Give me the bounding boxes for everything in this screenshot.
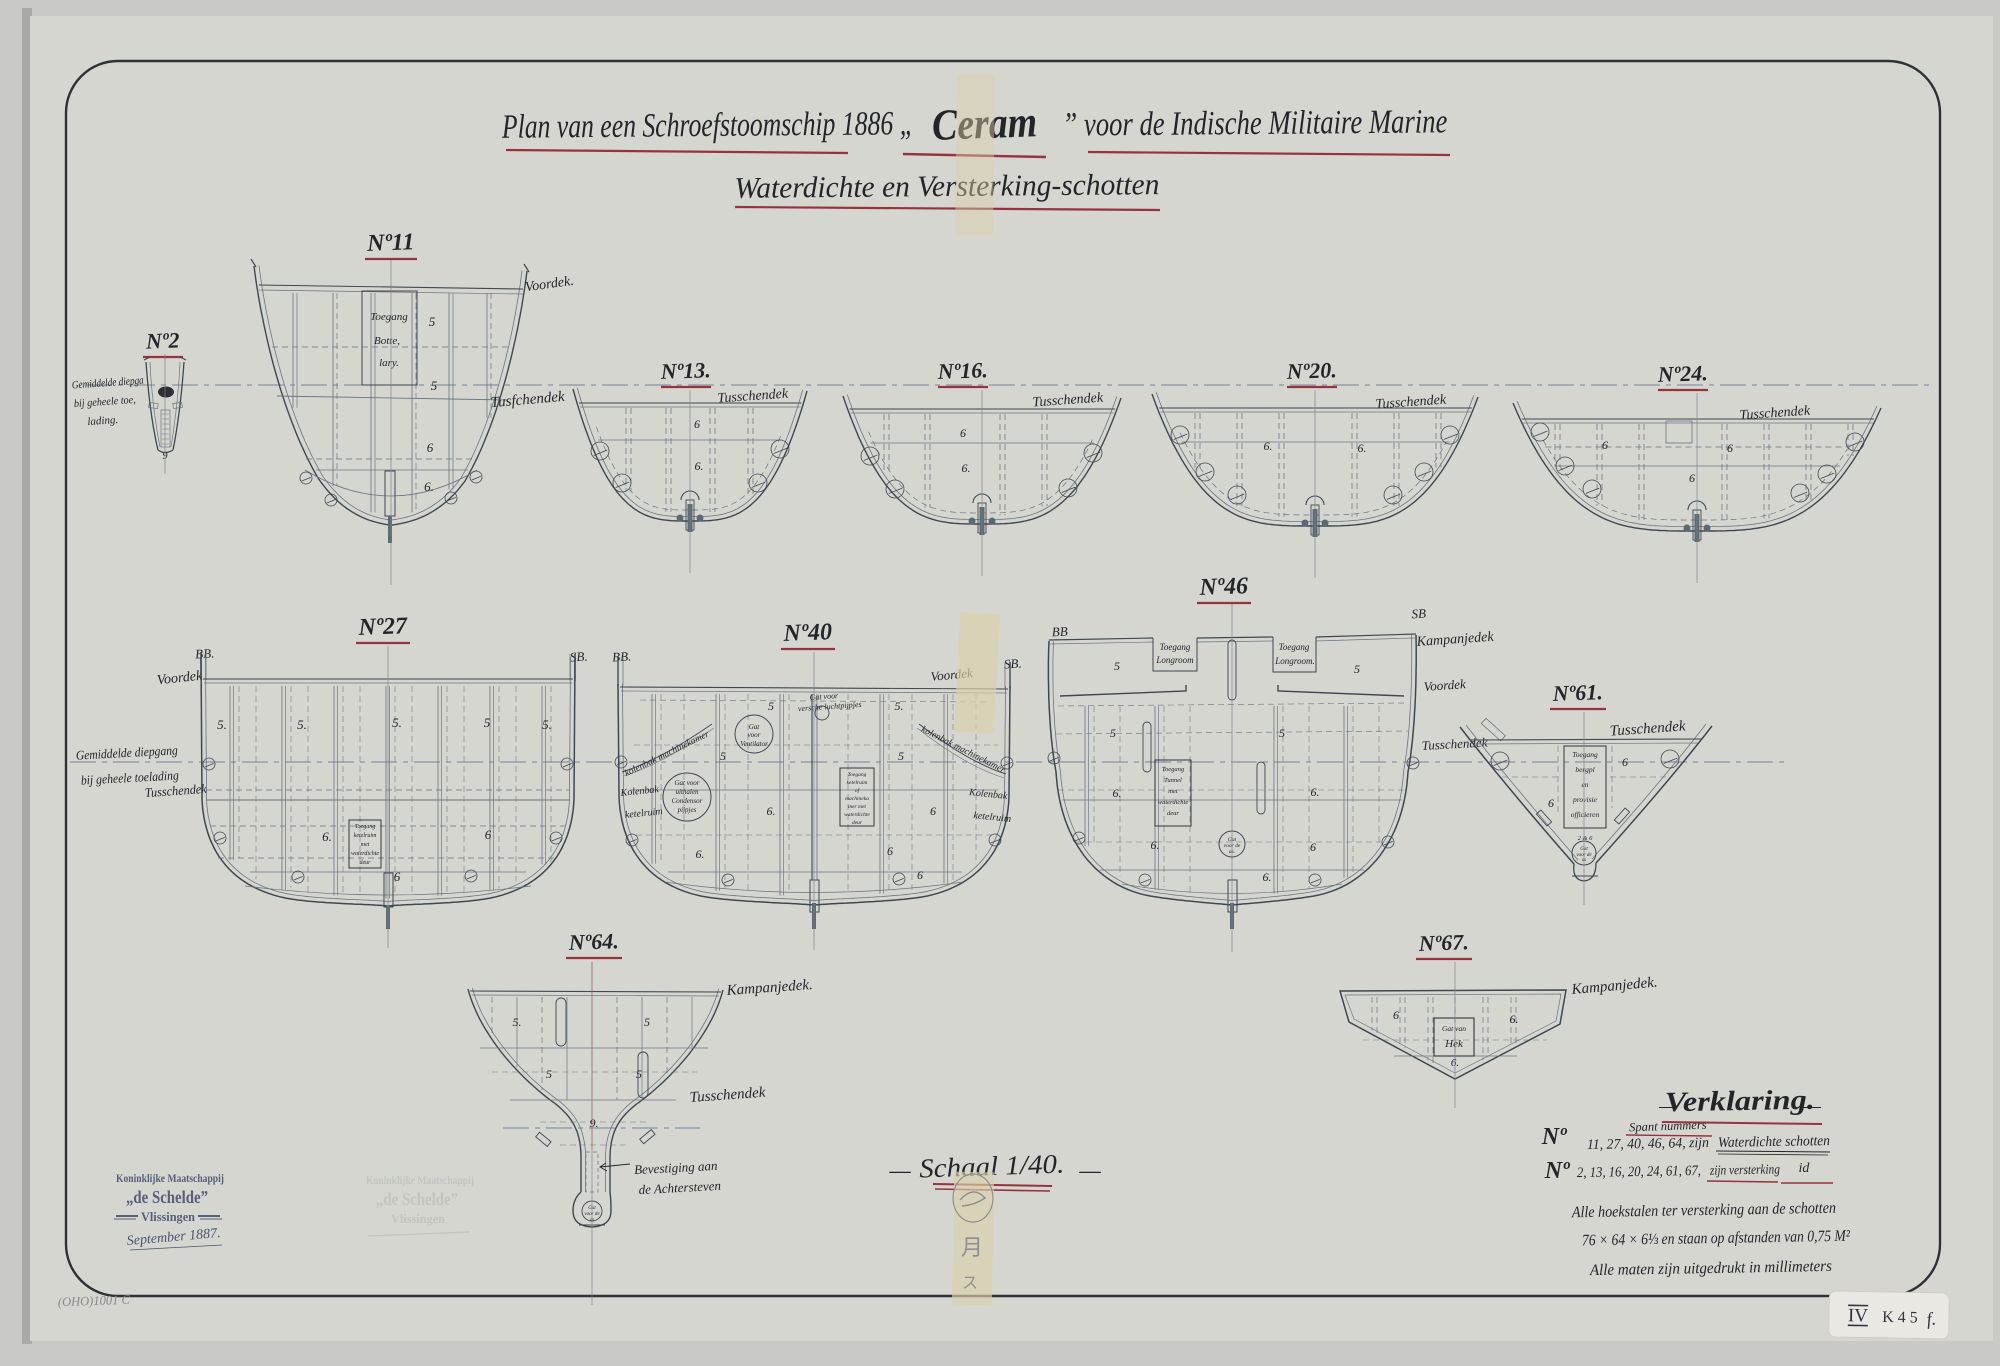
svg-text:mer met: mer met (848, 804, 866, 810)
svg-text:6: 6 (887, 844, 893, 858)
svg-text:SB.: SB. (570, 649, 588, 665)
svg-text:5.: 5. (542, 717, 552, 732)
svg-text:6: 6 (427, 440, 434, 455)
svg-text:Condensor: Condensor (672, 797, 703, 805)
svg-text:Nº40: Nº40 (782, 619, 832, 647)
svg-text:6.: 6. (1510, 1012, 1519, 1026)
svg-text:SB: SB (1411, 606, 1426, 622)
svg-text:waterdichte: waterdichte (844, 812, 870, 818)
svg-text:Toegang: Toegang (370, 311, 408, 323)
svg-text:6.: 6. (322, 829, 332, 844)
svg-text:Toegang: Toegang (848, 772, 867, 778)
svg-text:Nº2: Nº2 (145, 327, 180, 353)
svg-text:6: 6 (917, 868, 923, 882)
svg-text:9.: 9. (590, 1116, 599, 1130)
svg-text:5: 5 (898, 749, 904, 763)
svg-text:met: met (1168, 788, 1178, 795)
svg-text:Waterdichte schotten: Waterdichte schotten (1718, 1133, 1830, 1151)
svg-text:5.: 5. (217, 717, 227, 732)
svg-text:—: — (1078, 1158, 1101, 1184)
svg-text:K 4 5: K 4 5 (1882, 1309, 1918, 1327)
svg-text:Longroom: Longroom (1155, 655, 1194, 665)
svg-text:uithalen: uithalen (676, 788, 699, 796)
svg-text:5.: 5. (392, 715, 402, 730)
svg-text:6.: 6. (767, 804, 776, 818)
svg-text:SB.: SB. (1004, 656, 1022, 672)
svg-text:6: 6 (1622, 755, 1628, 769)
svg-text:5: 5 (429, 314, 436, 329)
svg-text:6: 6 (1310, 840, 1316, 854)
svg-text:Toegang: Toegang (1162, 766, 1185, 773)
svg-text:waterdichte: waterdichte (351, 851, 379, 857)
svg-text:6: 6 (1393, 1008, 1399, 1022)
svg-text:5: 5 (484, 715, 491, 730)
svg-text:6: 6 (394, 869, 401, 884)
svg-text:„de Schelde”: „de Schelde” (126, 1187, 208, 1207)
svg-text:Ventilator: Ventilator (740, 740, 768, 748)
svg-text:6: 6 (694, 417, 700, 431)
svg-text:Nº13.: Nº13. (659, 357, 711, 384)
svg-text:6.: 6. (424, 479, 434, 494)
svg-text:Nº64.: Nº64. (567, 928, 619, 955)
svg-text:Nº27: Nº27 (357, 613, 408, 641)
svg-text:Gat voor: Gat voor (674, 779, 699, 787)
svg-text:Koninklijke Maatschappij: Koninklijke Maatschappij (116, 1173, 224, 1185)
svg-text:Nº: Nº (1544, 1158, 1570, 1184)
svg-text:ス: ス (962, 1275, 978, 1292)
svg-text:6.: 6. (1151, 838, 1160, 852)
svg-text:Hek: Hek (1444, 1038, 1464, 1050)
svg-text:Nº20.: Nº20. (1285, 357, 1337, 384)
svg-text:5: 5 (644, 1015, 650, 1029)
svg-text:6.: 6. (1311, 785, 1320, 799)
svg-text:Toegang: Toegang (1572, 750, 1598, 759)
svg-text:Gat van: Gat van (1442, 1024, 1466, 1033)
svg-text:6.: 6. (1263, 870, 1272, 884)
svg-text:5.: 5. (297, 717, 307, 732)
svg-text:Toegang: Toegang (1160, 642, 1191, 652)
svg-text:Toegang: Toegang (355, 824, 375, 830)
svg-text:deur: deur (1167, 810, 1179, 817)
svg-text:5: 5 (1354, 662, 1360, 676)
svg-text:5: 5 (1110, 726, 1116, 740)
svg-text:officieren: officieren (1571, 810, 1600, 819)
svg-text:Koninklijke Maatschappij: Koninklijke Maatschappij (366, 1175, 474, 1187)
svg-text:5: 5 (636, 1067, 642, 1081)
svg-text:6: 6 (485, 827, 492, 842)
svg-text:IV: IV (1848, 1305, 1869, 1326)
svg-text:waterdichte: waterdichte (1158, 799, 1189, 806)
svg-text:(OHO)1001 С: (OHO)1001 С (58, 1292, 131, 1310)
svg-text:en: en (1581, 780, 1588, 789)
svg-text:lading.: lading. (87, 414, 119, 428)
svg-text:5.: 5. (513, 1015, 522, 1029)
svg-text:Verklaring.: Verklaring. (1665, 1085, 1816, 1119)
svg-text:Toegang: Toegang (1279, 642, 1310, 652)
svg-text:Nº: Nº (1541, 1124, 1567, 1150)
svg-text:Spant nummers: Spant nummers (1629, 1118, 1707, 1135)
svg-text:11, 27, 40, 46, 64, zijn: 11, 27, 40, 46, 64, zijn (1587, 1135, 1709, 1153)
svg-text:deur: deur (360, 860, 372, 866)
svg-text:” voor de Indische Militaire M: ” voor de Indische Militaire Marine (1062, 103, 1447, 143)
svg-text:6: 6 (930, 804, 936, 818)
svg-text:2, 13, 16, 20, 24, 61, 67,: 2, 13, 16, 20, 24, 61, 67, (1577, 1163, 1701, 1181)
svg-text:Gat: Gat (749, 723, 761, 731)
svg-text:voor: voor (748, 731, 761, 739)
svg-text:6: 6 (960, 426, 966, 440)
svg-text:ketelruim: ketelruim (354, 833, 377, 839)
svg-text:6.: 6. (1358, 441, 1367, 455)
svg-text:ketelruim: ketelruim (847, 780, 868, 786)
svg-text:Waterdichte en Versterking-sch: Waterdichte en Versterking-schotten (734, 168, 1159, 205)
svg-text:Nº46: Nº46 (1198, 573, 1248, 601)
svg-text:6: 6 (1548, 796, 1554, 810)
svg-text:Nº67.: Nº67. (1417, 929, 1469, 956)
svg-text:BB: BB (1051, 624, 1068, 640)
svg-text:月: 月 (961, 1235, 983, 1260)
svg-text:Vlissingen: Vlissingen (141, 1209, 196, 1224)
svg-text:machineka: machineka (845, 796, 869, 802)
svg-text:5: 5 (720, 749, 726, 763)
svg-text:Longroom.: Longroom. (1274, 656, 1314, 666)
svg-text:id: id (1799, 1161, 1811, 1176)
svg-text:pijpjes: pijpjes (677, 806, 697, 814)
svg-text:voor de: voor de (584, 1212, 600, 1217)
svg-text:6.: 6. (695, 459, 704, 473)
svg-text:6: 6 (1727, 441, 1733, 455)
svg-text:5: 5 (1114, 659, 1120, 673)
svg-text:5: 5 (546, 1067, 552, 1081)
svg-text:—: — (888, 1158, 911, 1184)
svg-text:deur: deur (852, 820, 863, 826)
svg-text:Voordek: Voordek (1423, 676, 1466, 694)
svg-text:6: 6 (1602, 438, 1608, 452)
svg-text:Nº11: Nº11 (366, 229, 415, 257)
svg-text:6.: 6. (696, 847, 705, 861)
svg-text:Botte,: Botte, (374, 335, 400, 347)
svg-text:Plan van een Schroefstoomschip: Plan van een Schroefstoomschip 1886 „ (501, 105, 914, 146)
svg-text:„de Schelde”: „de Schelde” (376, 1189, 458, 1209)
svg-text:met: met (361, 842, 370, 848)
svg-text:5: 5 (768, 699, 774, 713)
svg-text:Nº24.: Nº24. (1656, 360, 1708, 387)
svg-text:5: 5 (1279, 726, 1285, 740)
svg-text:f.: f. (1926, 1308, 1937, 1329)
svg-text:6.: 6. (1264, 439, 1273, 453)
svg-text:5: 5 (431, 378, 438, 393)
svg-text:Nº61.: Nº61. (1551, 679, 1603, 706)
svg-text:—: — (1802, 1095, 1821, 1117)
svg-text:5.: 5. (895, 699, 904, 713)
svg-text:provisie: provisie (1572, 795, 1598, 804)
svg-text:zijn versterking: zijn versterking (1709, 1161, 1780, 1177)
svg-text:bergpl: bergpl (1575, 765, 1594, 774)
svg-text:Nº16.: Nº16. (936, 357, 988, 384)
svg-text:Tunnel: Tunnel (1164, 777, 1182, 784)
svg-text:6: 6 (1689, 471, 1695, 485)
svg-text:6.: 6. (962, 461, 971, 475)
svg-text:BB.: BB. (612, 649, 632, 665)
svg-text:lary.: lary. (379, 357, 399, 369)
svg-text:BB.: BB. (195, 646, 215, 662)
svg-text:6.: 6. (1113, 786, 1122, 800)
svg-text:Vlissingen: Vlissingen (391, 1211, 446, 1226)
